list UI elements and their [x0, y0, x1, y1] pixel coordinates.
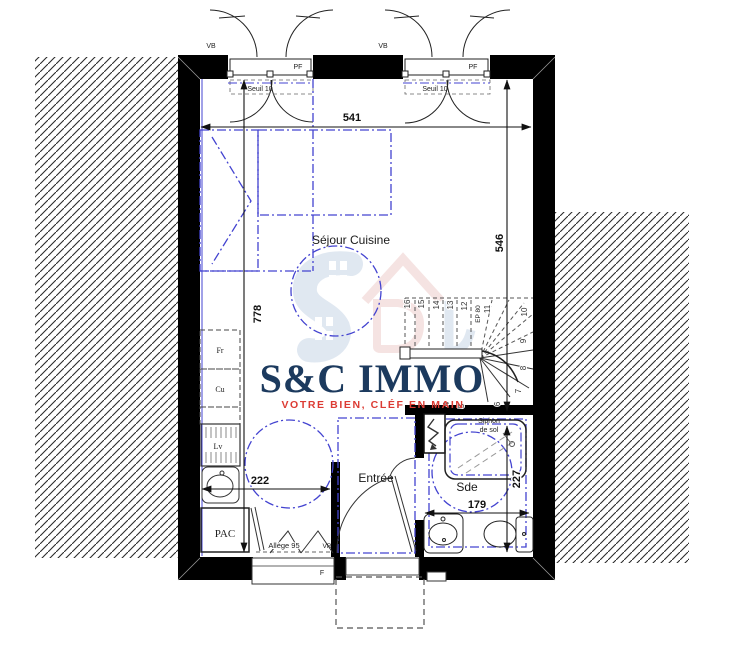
vr-label: VR — [322, 543, 331, 550]
svg-text:7: 7 — [514, 388, 523, 393]
heat-pump-label: PAC — [215, 528, 235, 540]
stair-width-label: EP 80 — [475, 305, 482, 323]
svg-text:11: 11 — [483, 304, 492, 313]
cooker-label: Cu — [215, 385, 224, 394]
dim-179: 179 — [468, 499, 486, 511]
hatch-right — [555, 212, 689, 563]
kitchen-units — [200, 330, 264, 552]
fridge-label: Fr — [216, 346, 223, 355]
allege-label: Allège 95 — [268, 541, 299, 550]
svg-text:14: 14 — [432, 300, 441, 309]
dishwasher-label: Lv — [214, 442, 223, 451]
svg-text:16: 16 — [403, 299, 412, 308]
dim-778: 778 — [252, 305, 264, 323]
room-label-entree: Entrée — [358, 471, 394, 485]
watermark-house-body — [377, 303, 420, 349]
dim-541: 541 — [343, 112, 361, 124]
hatch-left — [35, 57, 179, 558]
dim-222: 222 — [251, 475, 269, 487]
siphon-label-line2: de sol — [480, 427, 499, 434]
shutter-label-vb-1: VB — [206, 43, 216, 50]
threshold-label-1: Seuil 10 — [247, 86, 272, 93]
agency-logo-text: S&C IMMO — [260, 356, 485, 401]
technical-closet — [424, 414, 445, 453]
siphon-label-line1: Siphon — [478, 418, 500, 425]
svg-text:9: 9 — [519, 338, 528, 343]
window-label-pf-2: PF — [469, 64, 478, 71]
svg-text:15: 15 — [417, 299, 426, 308]
floor-plan-page: VB VB PF PF Seuil 10 Seuil 10 — [0, 0, 740, 658]
room-label-sde: Sde — [456, 480, 478, 494]
walls — [178, 55, 555, 580]
window-label-pf-1: PF — [294, 64, 303, 71]
agency-tagline: VOTRE BIEN, CLÉF EN MAIN — [281, 398, 464, 411]
window-f-label: F — [320, 570, 324, 577]
svg-text:8: 8 — [519, 365, 528, 370]
shutter-label-vb-2: VB — [378, 43, 388, 50]
threshold-label-2: Seuil 10 — [422, 86, 447, 93]
wall-corner-mitres — [178, 57, 555, 580]
svg-text:10: 10 — [520, 307, 529, 316]
watermark-house-roof — [365, 259, 441, 301]
dim-227: 227 — [511, 470, 523, 488]
svg-text:13: 13 — [446, 300, 455, 309]
floor-plan: VB VB PF PF Seuil 10 Seuil 10 — [0, 0, 740, 658]
hatched-adjacent-buildings — [35, 57, 689, 563]
svg-text:6: 6 — [493, 401, 502, 406]
room-label-sejour: Séjour Cuisine — [312, 233, 390, 247]
svg-text:12: 12 — [460, 301, 469, 310]
dim-546: 546 — [494, 234, 506, 252]
